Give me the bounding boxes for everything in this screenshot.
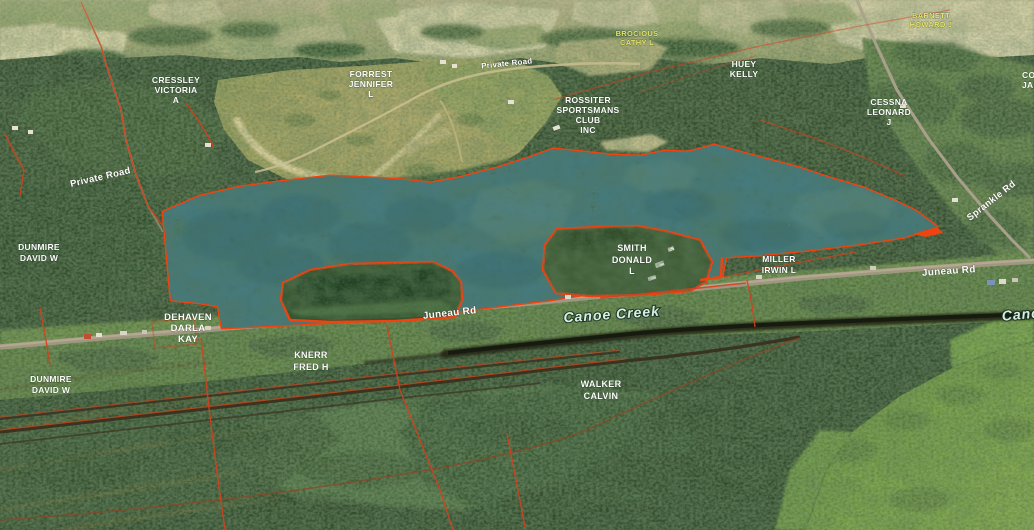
svg-text:A: A: [173, 95, 179, 105]
svg-text:IRWIN L: IRWIN L: [762, 265, 797, 275]
svg-text:CATHY L: CATHY L: [620, 38, 654, 47]
svg-text:L: L: [629, 266, 635, 276]
svg-text:BROCIOUS: BROCIOUS: [616, 29, 659, 38]
svg-text:JAM: JAM: [1022, 80, 1034, 90]
svg-text:DUNMIRE: DUNMIRE: [30, 374, 72, 384]
svg-text:DAVID W: DAVID W: [32, 385, 71, 395]
svg-text:SPORTSMANS: SPORTSMANS: [557, 105, 620, 115]
svg-text:WALKER: WALKER: [581, 379, 622, 389]
svg-text:DUNMIRE: DUNMIRE: [18, 242, 60, 252]
svg-text:KNERR: KNERR: [294, 350, 328, 360]
svg-text:HOWARD J: HOWARD J: [910, 20, 953, 29]
svg-text:KELLY: KELLY: [730, 69, 759, 79]
svg-text:DEHAVEN: DEHAVEN: [164, 312, 212, 323]
svg-text:BARNETT: BARNETT: [912, 11, 950, 20]
svg-text:CLUB: CLUB: [576, 115, 601, 125]
svg-text:DAVID W: DAVID W: [20, 253, 59, 263]
svg-text:COV: COV: [1022, 70, 1034, 80]
svg-text:JENNIFER: JENNIFER: [349, 79, 393, 89]
svg-text:LEONARD: LEONARD: [867, 107, 911, 117]
svg-text:KAY: KAY: [178, 334, 198, 345]
svg-text:CALVIN: CALVIN: [584, 391, 619, 401]
svg-text:DONALD: DONALD: [612, 255, 652, 265]
svg-text:VICTORIA: VICTORIA: [155, 85, 198, 95]
svg-text:CESSNA: CESSNA: [870, 97, 907, 107]
svg-text:FRED H: FRED H: [293, 362, 328, 372]
svg-text:FORREST: FORREST: [350, 69, 393, 79]
svg-text:DARLA: DARLA: [171, 323, 206, 334]
svg-text:MILLER: MILLER: [762, 254, 795, 264]
svg-text:CRESSLEY: CRESSLEY: [152, 75, 200, 85]
svg-text:J: J: [886, 117, 891, 127]
svg-text:INC: INC: [580, 125, 596, 135]
svg-text:SMITH: SMITH: [617, 243, 647, 253]
svg-text:ROSSITER: ROSSITER: [565, 95, 611, 105]
svg-text:HUEY: HUEY: [732, 59, 757, 69]
svg-text:L: L: [368, 89, 374, 99]
